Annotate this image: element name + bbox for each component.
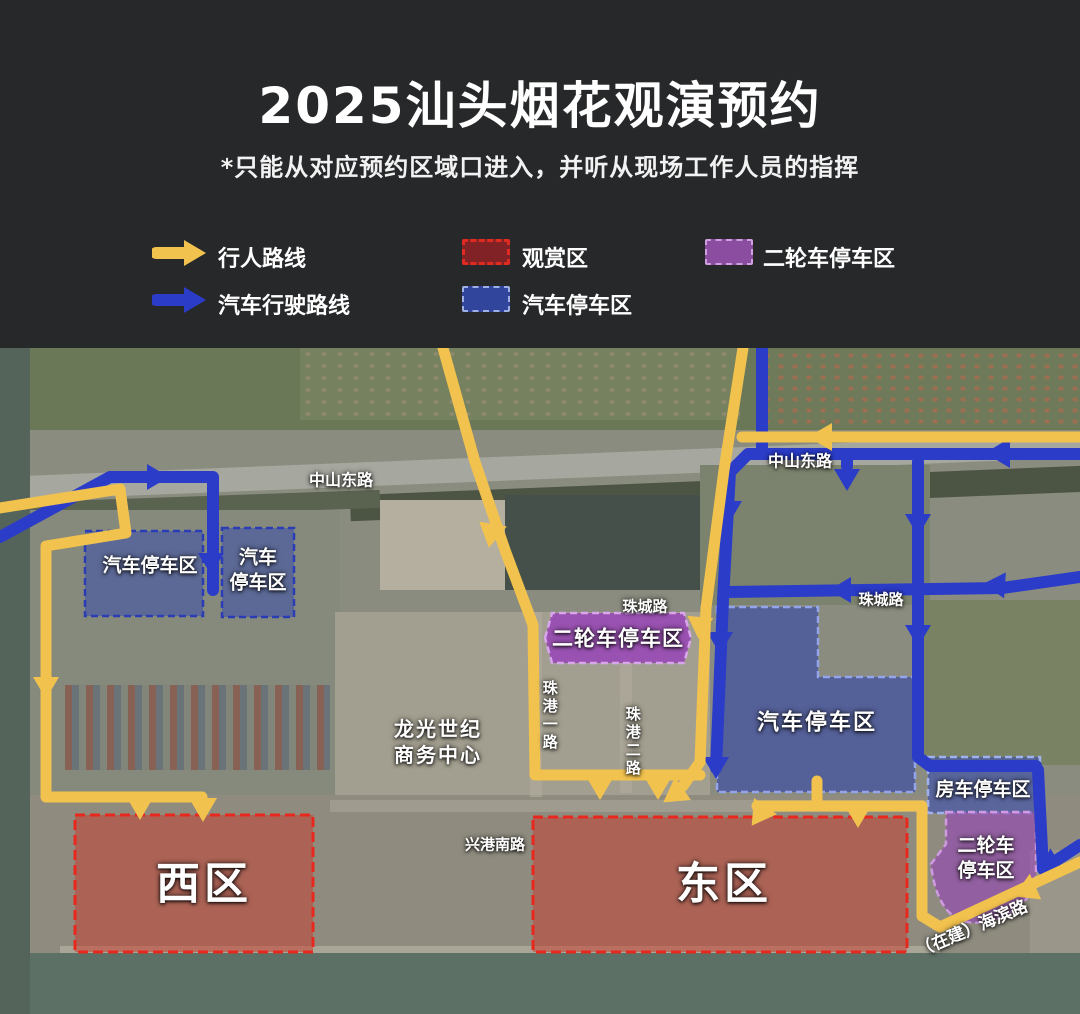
fireworks-reservation-poster: 中山东路 中山东路 珠城路 珠城路 珠港一路 珠港二路 兴港南路 （在建）海滨路… [0, 0, 1080, 1014]
legend-pedestrian-route-label: 行人路线 [218, 241, 306, 273]
bg-right-fields [920, 600, 1080, 765]
car-parking-swatch-icon [462, 286, 510, 312]
bg-containers [65, 685, 330, 770]
bg-right-mid [700, 465, 930, 605]
zone-label-car-parking-1: 汽车停车区 [102, 554, 197, 579]
poi-label-business-center-line2: 商务中心 [394, 742, 482, 768]
bg-water-left [0, 348, 30, 1014]
poi-label-business-center-line1: 龙光世纪 [394, 716, 482, 742]
zone-label-east: 东区 [676, 855, 772, 912]
zone-label-car-parking-2-line2: 停车区 [229, 570, 286, 595]
poster-subtitle: *只能从对应预约区域口进入，并听从现场工作人员的指挥 [221, 148, 860, 183]
bg-sandy-right [1030, 850, 1080, 960]
poi-label-business-center: 龙光世纪 商务中心 [394, 716, 482, 768]
road-label-zhugang-2: 珠港二路 [622, 706, 642, 778]
zone-label-car-parking-main: 汽车停车区 [757, 710, 877, 739]
bg-road-xinggang [330, 800, 930, 812]
zone-label-two-wheeler-east-line2: 停车区 [957, 858, 1014, 883]
bg-pale-yard [380, 500, 505, 590]
bg-dark-buildings [505, 495, 705, 590]
legend-car-parking-label: 汽车停车区 [522, 288, 632, 320]
pedestrian-route-arrow-icon [152, 238, 208, 268]
bg-water-bottom [0, 953, 1080, 1014]
poster-title: 2025汕头烟花观演预约 [258, 66, 821, 138]
bg-villas-mid [300, 348, 740, 420]
road-label-zhucheng-west: 珠城路 [622, 597, 667, 617]
road-label-zhongshan-east: 中山东路 [768, 452, 832, 473]
road-label-zhongshan-west: 中山东路 [309, 471, 373, 492]
legend-car-route-label: 汽车行驶路线 [218, 288, 350, 320]
poster-header: 2025汕头烟花观演预约 *只能从对应预约区域口进入，并听从现场工作人员的指挥 … [0, 0, 1080, 348]
two-wheeler-swatch-icon [705, 239, 753, 265]
zone-label-two-wheeler-east-line1: 二轮车 [957, 833, 1014, 858]
road-label-zhucheng-east: 珠城路 [858, 590, 903, 610]
zone-label-west: 西区 [156, 855, 252, 912]
zone-label-car-parking-2: 汽车 停车区 [229, 545, 286, 594]
zone-label-rv-parking: 房车停车区 [935, 778, 1030, 803]
zone-label-two-wheeler-east: 二轮车 停车区 [957, 833, 1014, 882]
legend-viewing-zone-label: 观赏区 [522, 241, 588, 273]
road-label-zhugang-1: 珠港一路 [539, 680, 559, 752]
car-route-arrow-icon [152, 285, 208, 315]
legend-two-wheeler-label: 二轮车停车区 [763, 241, 895, 273]
road-label-xinggang-south: 兴港南路 [465, 835, 525, 855]
zone-label-two-wheeler-top: 二轮车停车区 [552, 625, 684, 652]
viewing-zone-swatch-icon [462, 239, 510, 265]
bg-villas-right [760, 350, 1080, 428]
zone-label-car-parking-2-line1: 汽车 [229, 545, 286, 570]
